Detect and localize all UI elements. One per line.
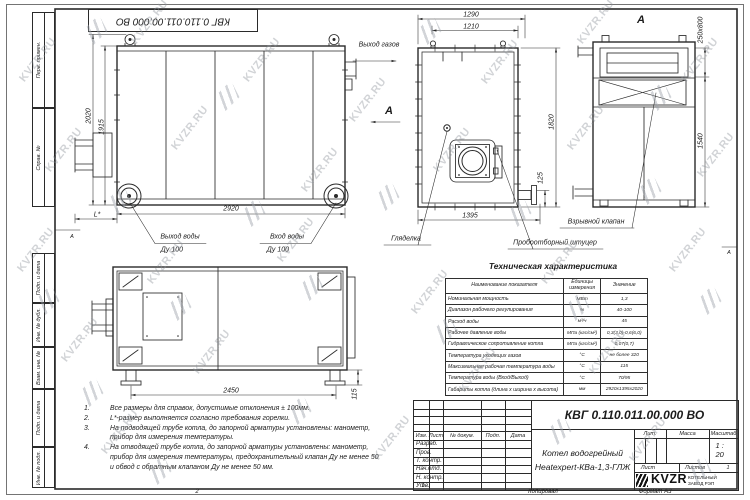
- dim-1820: 1820: [549, 114, 556, 130]
- tb-sheets-value: 1: [726, 465, 729, 471]
- title-block: Изм. Лист № докум. Подп. Дата Разраб. Пр…: [413, 400, 739, 491]
- sampling-fitting-label: Пробоотборный штуцер: [513, 240, 597, 247]
- col-header-name: Наименование показателя: [446, 279, 564, 294]
- top-stamp-box: КВГ 0.110.011.00.000 ВО: [88, 9, 258, 32]
- tb-row-prov: Пров.: [416, 450, 432, 456]
- tb-row-nachotd: Нач.отд.: [416, 466, 441, 472]
- dim-1290: 1290: [463, 12, 479, 19]
- dim-1395: 1395: [462, 213, 478, 220]
- explosion-valve-label: Взрывной клапан: [568, 219, 625, 226]
- frame-field-inv-dubl: Инв. № дубл.: [32, 303, 55, 347]
- tech-table-title: Техническая характеристика: [489, 261, 617, 271]
- table-row: Гидравлическое сопротивление котлаМПа (к…: [446, 339, 648, 350]
- frame-field-perv-primen: Перв. примен.: [32, 12, 55, 108]
- scale-value: 1 : 20: [716, 441, 731, 459]
- tb-row-razrab: Разраб.: [416, 441, 438, 447]
- frame-field-sprav-no: Справ. №: [32, 108, 55, 207]
- tb-scale-label: Масштаб: [711, 431, 737, 437]
- sight-glass-label: Гляделка: [391, 236, 421, 243]
- zone-number-1: 1: [421, 483, 424, 489]
- tb-col-podp: Подп.: [486, 433, 501, 439]
- zone-letter-right: А: [727, 250, 731, 256]
- product-name-line2: Heatexpert-КВа-1,3-ГЛЖ: [535, 462, 630, 472]
- dim-l-star: L*: [94, 212, 101, 219]
- product-name-line1: Котел водогрейный: [542, 448, 623, 458]
- table-row: Температура уходящих газов°Сне более 320: [446, 350, 648, 361]
- zone-number-2: 2: [195, 489, 198, 495]
- tb-col-dokum: № докум.: [450, 433, 474, 439]
- table-row: Максимальная рабочая температура воды°С1…: [446, 361, 648, 372]
- table-row: Габариты котла (длина х ширина х высота)…: [446, 384, 648, 395]
- kvzr-brand-text: KVZR: [651, 472, 687, 486]
- tb-row-nkontr: Н. контр.: [416, 475, 443, 481]
- tb-sheet-label: Лист: [641, 465, 655, 471]
- gas-outlet-label: Выход газов: [359, 42, 400, 49]
- note-1: 1.Все размеры для справок, допустимые от…: [84, 404, 384, 414]
- col-header-unit: Единицы измерения: [563, 279, 601, 294]
- water-outlet-dn: Ду 100: [161, 247, 183, 254]
- frame-field-podp-data-1: Подп. и дата: [32, 253, 55, 303]
- top-stamp-text: КВГ 0.110.011.00.000 ВО: [116, 15, 230, 26]
- note-4: 4.На отводящей трубе котла, до запорной …: [84, 443, 384, 472]
- table-row: Диапазон рабочего регулирования%40-100: [446, 305, 648, 316]
- dim-2920: 2920: [223, 206, 239, 213]
- note-3: 3.На подводящей трубе котла, до запорной…: [84, 424, 384, 444]
- tb-sheets-label: Листов: [685, 465, 705, 471]
- table-row: Температура воды (Вход/Выход)°С70/95: [446, 373, 648, 384]
- frame-field-vzam-inv: Взам. инв. №: [32, 347, 55, 389]
- frame-field-podp-data-2: Подп. и дата: [32, 389, 55, 447]
- water-outlet-label: Выход воды: [160, 234, 199, 241]
- frame-field-inv-podl: Инв. № подл.: [32, 447, 55, 488]
- tb-lit-label: Лит.: [644, 431, 657, 437]
- kvzr-logo-icon: [636, 474, 648, 487]
- plan-view-drawing: [92, 267, 362, 399]
- zone-letter-left: А: [70, 234, 74, 240]
- table-row: Расход водым³/ч45: [446, 316, 648, 327]
- front-view-drawing: [384, 15, 603, 249]
- col-header-value: Значение: [601, 279, 648, 294]
- doc-number: КВГ 0.110.011.00.000 ВО: [531, 401, 738, 429]
- drawing-sheet: КВГ 0.110.011.00.000 ВО Перв. примен. Сп…: [0, 0, 750, 500]
- dim-1915: 1915: [99, 119, 106, 135]
- copy-label: Копировал: [528, 489, 558, 495]
- product-name: Котел водогрейный Heatexpert-КВа-1,3-ГЛЖ: [531, 429, 634, 490]
- company-name: КОТЕЛЬНЫЙ ЗАВОД РЭП: [688, 475, 717, 487]
- tb-col-izm: Изм.: [416, 433, 428, 439]
- tech-table: Наименование показателя Единицы измерени…: [445, 278, 648, 396]
- tech-table-header-row: Наименование показателя Единицы измерени…: [446, 279, 648, 294]
- dim-1540: 1540: [698, 133, 705, 149]
- dim-115: 115: [352, 388, 359, 399]
- dim-2020: 2020: [86, 108, 93, 124]
- notes-block: 1.Все размеры для справок, допустимые от…: [84, 404, 384, 473]
- tb-mass-label: Масса: [679, 431, 695, 437]
- format-label: Формат А3: [639, 489, 672, 495]
- view-a-drawing: [560, 36, 709, 229]
- table-row: Номинальная мощностьМВт1,3: [446, 294, 648, 305]
- tb-row-tkontr: Т. контр.: [416, 458, 442, 464]
- table-row: Рабочее давление водыМПа (кгс/см²)0,3(3,…: [446, 327, 648, 338]
- section-arrow-label: А: [385, 105, 393, 117]
- tb-col-data: Дата: [511, 433, 526, 439]
- note-2: 2.L*-размер выполняется согласно требова…: [84, 414, 384, 424]
- water-inlet-dn: Ду 100: [267, 247, 289, 254]
- water-inlet-label: Вход воды: [270, 234, 304, 241]
- dim-125: 125: [538, 172, 545, 184]
- dim-250x800: 250x800: [698, 17, 705, 44]
- tb-col-list: Лист: [429, 433, 443, 439]
- dim-1210: 1210: [463, 24, 479, 31]
- view-a-label: А: [637, 14, 645, 26]
- dim-2450: 2450: [223, 388, 239, 395]
